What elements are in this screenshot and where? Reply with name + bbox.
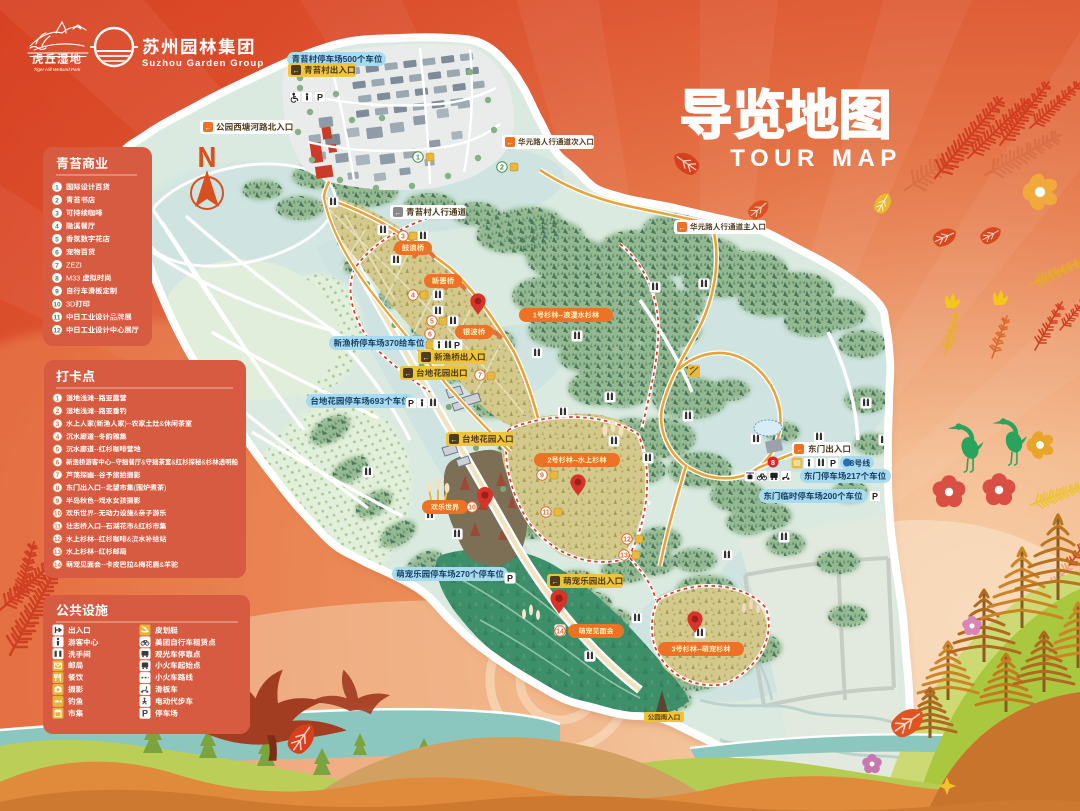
svg-text:←: ← (552, 577, 559, 587)
svg-text:5: 5 (55, 233, 59, 243)
svg-text:8: 8 (55, 272, 59, 282)
svg-text:12: 12 (623, 535, 631, 545)
svg-text:青苔村出入口: 青苔村出入口 (304, 64, 356, 76)
svg-text:洗手间: 洗手间 (68, 649, 91, 660)
svg-text:市集: 市集 (68, 708, 84, 719)
svg-text:青苔商业: 青苔商业 (56, 153, 108, 172)
svg-text:华元路人行通道主入口: 华元路人行通道主入口 (690, 222, 766, 233)
svg-text:12: 12 (54, 534, 61, 543)
svg-text:7: 7 (478, 371, 482, 381)
svg-text:观光车停靠点: 观光车停靠点 (155, 649, 201, 660)
svg-text:8号线: 8号线 (850, 458, 870, 469)
svg-text:P: P (408, 398, 414, 408)
svg-text:隐溪餐厅: 隐溪餐厅 (66, 222, 95, 232)
svg-text:11: 11 (54, 521, 61, 530)
svg-text:4: 4 (411, 291, 415, 301)
svg-text:自行车滑板定制: 自行车滑板定制 (66, 287, 117, 297)
svg-text:台地花园出口: 台地花园出口 (416, 367, 468, 379)
svg-text:摄影: 摄影 (68, 684, 84, 695)
svg-text:半岛秋色--戏水女孩摄影: 半岛秋色--戏水女孩摄影 (66, 496, 141, 506)
svg-text:1: 1 (416, 153, 420, 163)
svg-text:2: 2 (55, 194, 59, 204)
svg-text:国际设计百货: 国际设计百货 (66, 183, 110, 193)
svg-text:1: 1 (55, 181, 59, 191)
svg-text:2: 2 (500, 163, 504, 173)
svg-text:12: 12 (53, 324, 61, 334)
svg-text:壮志桥入口--石湖花市&红杉市集: 壮志桥入口--石湖花市&红杉市集 (66, 522, 166, 532)
svg-text:10: 10 (53, 298, 61, 308)
svg-text:9: 9 (540, 471, 544, 481)
svg-text:P: P (872, 491, 878, 501)
svg-text:美团自行车租赁点: 美团自行车租赁点 (155, 637, 216, 648)
svg-text:N: N (197, 136, 217, 175)
svg-text:打卡点: 打卡点 (56, 366, 95, 385)
svg-text:湿地浅滩--路亚露营: 湿地浅滩--路亚露营 (66, 394, 127, 404)
svg-text:11: 11 (542, 508, 550, 518)
svg-text:中日工业设计中心展厅: 中日工业设计中心展厅 (66, 326, 139, 336)
svg-text:新渔桥停车场370给车位: 新渔桥停车场370给车位 (334, 337, 425, 349)
svg-text:6: 6 (428, 330, 432, 340)
svg-text:4: 4 (56, 432, 60, 441)
svg-text:7: 7 (56, 470, 60, 479)
svg-text:11: 11 (54, 311, 61, 321)
svg-text:水上人家(新渔人家)--农家土灶&休闲茶室: 水上人家(新渔人家)--农家土灶&休闲茶室 (66, 419, 192, 429)
svg-text:3: 3 (55, 207, 59, 217)
svg-text:邮局: 邮局 (68, 660, 84, 671)
svg-text:←: ← (423, 353, 430, 363)
svg-text:新渔桥出入口: 新渔桥出入口 (434, 351, 486, 363)
svg-text:虎丘湿地: 虎丘湿地 (32, 51, 82, 67)
svg-text:Tiger Hill Wetland Park: Tiger Hill Wetland Park (34, 67, 82, 73)
svg-text:7: 7 (55, 259, 59, 269)
svg-text:←: ← (405, 369, 412, 379)
svg-text:水上杉林--红杉咖啡&滨水补给站: 水上杉林--红杉咖啡&滨水补给站 (66, 534, 166, 544)
svg-text:滑板车: 滑板车 (155, 684, 178, 695)
svg-text:萌宠见面会--卡皮巴拉&梅花鹿&羊驼: 萌宠见面会--卡皮巴拉&梅花鹿&羊驼 (66, 560, 178, 570)
svg-text:13: 13 (54, 547, 61, 556)
svg-text:香氛数字花店: 香氛数字花店 (66, 235, 110, 245)
svg-text:13: 13 (620, 551, 628, 561)
svg-text:湿地浅滩--路亚垂钓: 湿地浅滩--路亚垂钓 (66, 406, 127, 416)
svg-text:皮划艇: 皮划艇 (155, 625, 178, 636)
svg-text:电动代步车: 电动代步车 (155, 696, 193, 707)
svg-text:1: 1 (56, 393, 60, 402)
svg-text:P: P (830, 458, 836, 468)
svg-text:东门出入口--北望市集(围炉煮茶): 东门出入口--北望市集(围炉煮茶) (66, 483, 166, 493)
svg-text:3D打印: 3D打印 (66, 300, 90, 310)
svg-text:10: 10 (54, 509, 61, 518)
svg-text:P: P (317, 92, 323, 102)
svg-text:萌宠乐园停车场270个停车位: 萌宠乐园停车场270个停车位 (396, 568, 504, 580)
svg-text:9: 9 (56, 496, 60, 505)
svg-text:←: ← (205, 123, 212, 133)
svg-text:华元路人行通道次入口: 华元路人行通道次入口 (518, 137, 594, 148)
svg-text:←: ← (395, 208, 402, 218)
svg-text:←: ← (451, 435, 458, 445)
svg-text:青苔书店: 青苔书店 (66, 196, 95, 206)
svg-text:6: 6 (56, 457, 60, 466)
svg-text:公园南入口: 公园南入口 (648, 712, 681, 722)
svg-text:3号杉林--萌宠杉林: 3号杉林--萌宠杉林 (671, 645, 731, 655)
svg-text:P: P (142, 707, 148, 720)
svg-text:游客中心: 游客中心 (68, 637, 99, 648)
svg-text:2: 2 (56, 406, 60, 415)
svg-text:←: ← (679, 223, 686, 233)
svg-text:5: 5 (56, 445, 60, 454)
svg-text:ZEZI: ZEZI (66, 261, 82, 271)
svg-text:3: 3 (401, 232, 405, 242)
svg-text:公共设施: 公共设施 (56, 600, 108, 619)
svg-text:停车场: 停车场 (155, 708, 178, 719)
svg-text:欢乐世界--无动力设施&亲子游乐: 欢乐世界--无动力设施&亲子游乐 (66, 509, 166, 519)
svg-text:6: 6 (55, 246, 59, 256)
svg-text:台地花园停车场693个车位: 台地花园停车场693个车位 (310, 395, 410, 407)
svg-text:新罟桥: 新罟桥 (432, 276, 455, 287)
svg-text:萌宠乐园出入口: 萌宠乐园出入口 (563, 575, 623, 587)
svg-text:东门出入口: 东门出入口 (808, 443, 851, 455)
svg-text:P: P (454, 340, 460, 350)
svg-text:钓鱼: 钓鱼 (68, 696, 84, 707)
svg-text:欢乐世界: 欢乐世界 (431, 503, 460, 513)
svg-text:青苔村人行通道: 青苔村人行通道 (406, 206, 467, 218)
svg-text:鼓浪桥: 鼓浪桥 (402, 243, 425, 254)
svg-text:东门停车场217个车位: 东门停车场217个车位 (804, 470, 887, 482)
svg-text:8: 8 (771, 458, 775, 468)
svg-text:M33 虚拟时尚: M33 虚拟时尚 (66, 274, 111, 284)
svg-text:餐饮: 餐饮 (68, 672, 84, 683)
svg-text:芦荡探幽--谷予旅拍摄影: 芦荡探幽--谷予旅拍摄影 (66, 470, 141, 480)
svg-text:9: 9 (55, 285, 59, 295)
svg-text:东门临时停车场200个车位: 东门临时停车场200个车位 (763, 490, 863, 502)
svg-text:公园西塘河路北入口: 公园西塘河路北入口 (216, 121, 293, 133)
svg-text:10: 10 (468, 503, 476, 513)
svg-text:Suzhou Garden Group: Suzhou Garden Group (142, 55, 264, 69)
svg-text:新渔桥游客中心--守拙餐厅&守拙茶室&红杉探秘&杉林透明船: 新渔桥游客中心--守拙餐厅&守拙茶室&红杉探秘&杉林透明船 (66, 458, 238, 468)
svg-text:宠物百货: 宠物百货 (66, 248, 96, 258)
svg-text:沉水廊道--红杉咖啡营地: 沉水廊道--红杉咖啡营地 (66, 445, 141, 455)
svg-text:银波桥: 银波桥 (463, 327, 486, 338)
svg-text:可持续咖啡: 可持续咖啡 (66, 209, 103, 219)
svg-text:1号杉林--浪漫水杉林: 1号杉林--浪漫水杉林 (533, 311, 600, 321)
svg-text:水上杉林--红杉邮局: 水上杉林--红杉邮局 (66, 547, 127, 557)
svg-text:中日工业设计品牌展: 中日工业设计品牌展 (66, 313, 132, 323)
svg-text:14: 14 (54, 560, 61, 569)
svg-text:14: 14 (556, 627, 564, 637)
svg-text:出入口: 出入口 (68, 625, 91, 636)
svg-text:3: 3 (56, 419, 60, 428)
svg-text:8: 8 (56, 483, 60, 492)
svg-text:小火车起始点: 小火车起始点 (155, 660, 201, 671)
svg-text:萌宠见面会: 萌宠见面会 (579, 627, 614, 637)
svg-text:5: 5 (430, 317, 434, 327)
svg-text:←: ← (797, 445, 804, 455)
svg-text:TOUR MAP: TOUR MAP (730, 138, 902, 173)
svg-text:小火车路线: 小火车路线 (155, 672, 193, 683)
svg-text:2号杉林--水上杉林: 2号杉林--水上杉林 (547, 456, 607, 466)
svg-text:←: ← (507, 138, 514, 148)
svg-text:台地花园入口: 台地花园入口 (462, 433, 514, 445)
svg-text:P: P (507, 573, 513, 583)
svg-text:4: 4 (55, 220, 59, 230)
svg-text:←: ← (293, 66, 300, 76)
svg-text:沉水廊道--冬韵雅集: 沉水廊道--冬韵雅集 (66, 432, 127, 442)
